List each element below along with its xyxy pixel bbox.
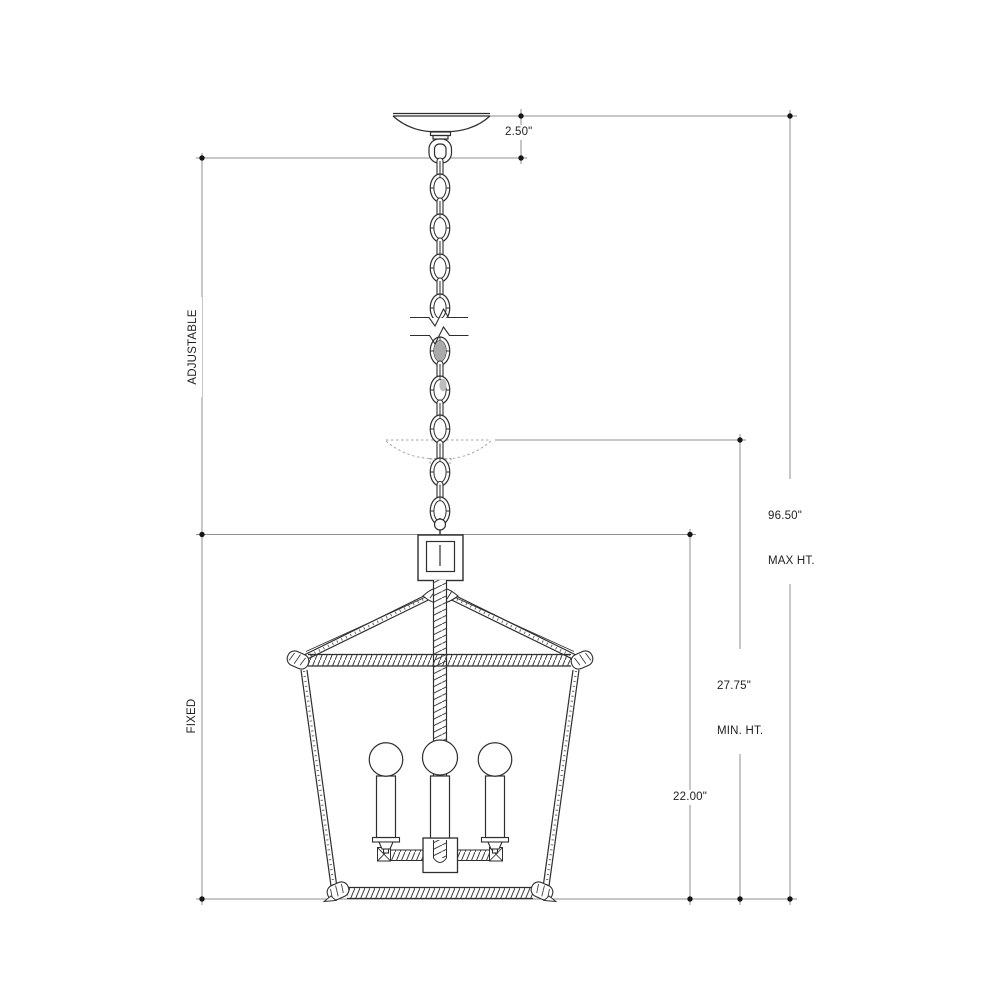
adjustable-section-label: ADJUSTABLE <box>186 297 202 397</box>
max-height-dimension: 96.50" MAX HT. <box>766 479 817 584</box>
chain-loop-block <box>418 518 463 581</box>
min-height-dimension: 27.75" MIN. HT. <box>715 649 765 754</box>
bulb-left <box>369 743 403 777</box>
max-height-caption: MAX HT. <box>768 554 815 569</box>
chandelier-line-drawing <box>0 0 1000 1000</box>
bulbs <box>369 740 512 776</box>
min-height-caption: MIN. HT. <box>717 724 763 739</box>
cage-bottom-ring <box>324 880 556 903</box>
bulb-center <box>423 740 458 775</box>
min-height-value: 27.75" <box>717 679 763 694</box>
max-height-value: 96.50" <box>768 509 815 524</box>
top-right-corner-knob <box>569 649 595 672</box>
candle-sleeves <box>377 776 505 838</box>
dimension-drawing-page: 2.50" ADJUSTABLE FIXED 96.50" MAX HT. 27… <box>0 0 1000 1000</box>
canopy-drop-dimension: 2.50" <box>503 125 534 140</box>
bulb-right <box>478 743 512 777</box>
socket-box <box>423 838 458 873</box>
top-left-corner-knob <box>285 649 311 672</box>
fixed-section-label: FIXED <box>185 686 201 746</box>
fixed-height-dimension: 22.00" <box>671 790 709 805</box>
ceiling-canopy <box>393 114 490 164</box>
